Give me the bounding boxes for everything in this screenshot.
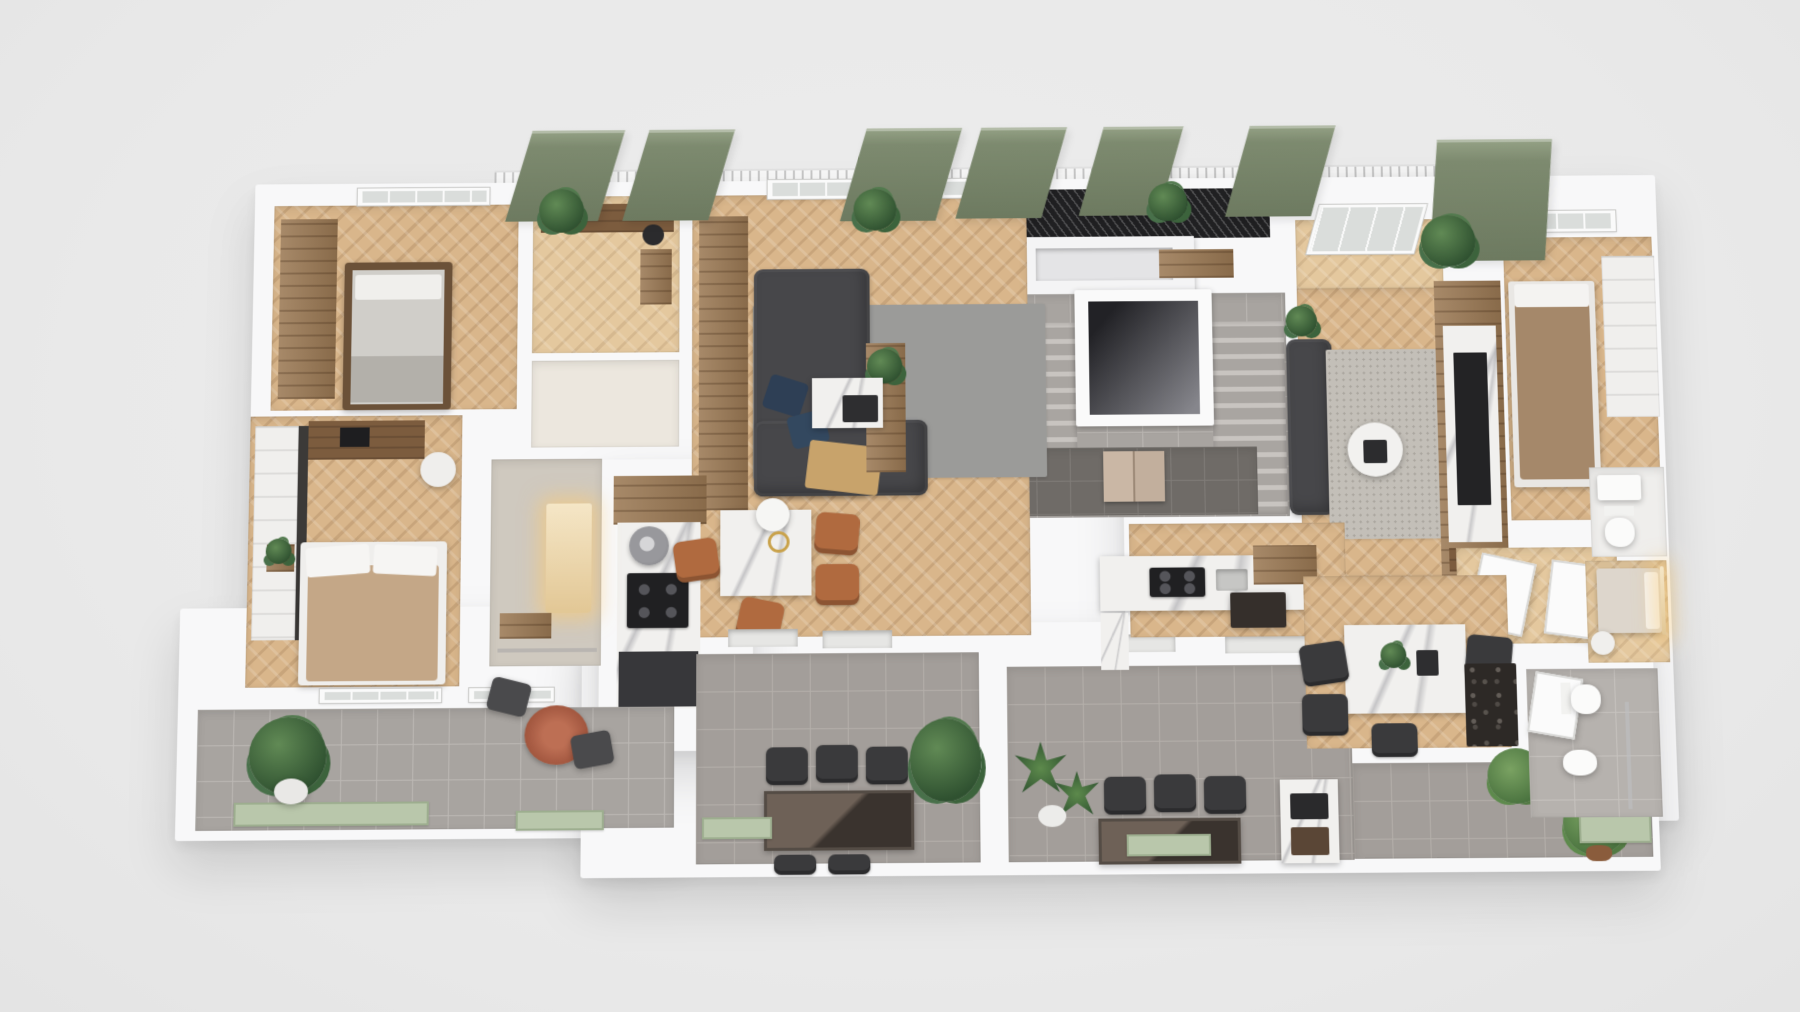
balcony-right-fern-pot bbox=[1586, 845, 1613, 861]
kitchen2-sink bbox=[1216, 569, 1248, 591]
terrace-planter-1 bbox=[233, 801, 429, 826]
kitchen-hood bbox=[629, 526, 669, 565]
master-duvet bbox=[306, 565, 439, 682]
living-wall-cabinet bbox=[699, 216, 748, 510]
kitchen2-fridge bbox=[1230, 592, 1286, 628]
study-shelf bbox=[640, 249, 672, 305]
living2-table-tray bbox=[1363, 440, 1387, 463]
small-bedroom-stool bbox=[1591, 631, 1616, 655]
kitchen2-cooktop bbox=[1149, 567, 1205, 597]
balcony-left-plant bbox=[910, 718, 983, 802]
floor-plan-canvas bbox=[166, 123, 1687, 891]
study-desk-lamp bbox=[642, 224, 664, 245]
balcony-left-chair-3 bbox=[866, 746, 908, 784]
roof-plant-3 bbox=[1148, 183, 1188, 221]
dining2-dark-rug bbox=[1464, 663, 1518, 746]
terrace-planter-2 bbox=[516, 810, 604, 831]
small-bedroom-pillow bbox=[1644, 572, 1660, 629]
hallway-floor bbox=[531, 360, 679, 448]
pendant-lamp bbox=[756, 498, 790, 531]
balcony-right-window-slot-2 bbox=[1225, 635, 1310, 653]
coffee-table-tray bbox=[843, 395, 879, 422]
kitchen-upper-cabinet bbox=[614, 475, 707, 524]
entry-sideboard bbox=[1159, 249, 1234, 278]
floor-plan-render bbox=[0, 0, 1800, 1012]
balcony-right-chair-2 bbox=[1154, 774, 1197, 812]
bedroom1-wardrobe bbox=[1601, 256, 1660, 417]
bathroom2-bidet bbox=[1563, 750, 1598, 776]
balcony-left-window-slot-2 bbox=[823, 630, 893, 648]
bathroom1-toilet-tank bbox=[1604, 506, 1634, 516]
dining2-table-plant bbox=[1380, 642, 1407, 668]
closet-rail bbox=[497, 648, 596, 653]
dining-chair-1 bbox=[672, 537, 721, 584]
balcony-right-plant-pot bbox=[1038, 805, 1066, 827]
elevator-doors bbox=[1103, 451, 1165, 502]
bathroom-vanity bbox=[500, 613, 552, 639]
roof-plant-2 bbox=[853, 189, 896, 231]
dining-chair-2 bbox=[814, 512, 861, 556]
balcony-left-window-slot-1 bbox=[728, 629, 798, 647]
desk-monitor bbox=[340, 427, 370, 447]
bathroom-lit-marble-wall bbox=[545, 503, 591, 613]
balcony-left-table bbox=[764, 790, 914, 851]
balcony-left-chair-2 bbox=[816, 745, 858, 783]
terrace-stool-2 bbox=[570, 730, 615, 770]
bedroom1-duvet bbox=[1514, 294, 1595, 479]
balcony-right-planter-1 bbox=[1127, 834, 1212, 857]
dining2-chair-2 bbox=[1302, 694, 1349, 736]
dining2-table bbox=[1344, 624, 1468, 713]
dining-chair-3 bbox=[815, 564, 859, 605]
balcony-right-chair-3 bbox=[1204, 776, 1247, 814]
bedroom2-wardrobe bbox=[278, 219, 338, 399]
master-pillow-1 bbox=[305, 544, 370, 578]
dining2-chair-1 bbox=[1298, 640, 1350, 688]
dining2-table-box bbox=[1416, 650, 1439, 676]
master-pillow-2 bbox=[373, 544, 438, 576]
tv-screen bbox=[1453, 352, 1491, 505]
kitchen-dark-cabinet bbox=[618, 651, 698, 707]
bedroom2-window bbox=[358, 188, 490, 206]
stair-shaft-void bbox=[1088, 301, 1200, 415]
bathroom2-toilet bbox=[1570, 684, 1601, 714]
balcony-left-chair-4 bbox=[774, 855, 816, 875]
bedroom1-pillow bbox=[1514, 284, 1589, 307]
bathroom1-sink bbox=[1597, 475, 1641, 501]
living2-sofa-plant bbox=[1285, 306, 1317, 337]
bathroom1-toilet bbox=[1604, 518, 1635, 547]
bathroom2-toilet-tank bbox=[1560, 683, 1571, 715]
balcony-left-planter bbox=[702, 817, 772, 839]
balcony-left-chair-5 bbox=[828, 854, 870, 874]
living2-window bbox=[1306, 204, 1427, 254]
kitchen2-counter-leg bbox=[1100, 613, 1129, 670]
balcony-left-chair-1 bbox=[766, 747, 808, 785]
bedroom2-blanket bbox=[350, 356, 443, 403]
master-wardrobe bbox=[251, 426, 299, 641]
bedroom2-pillow bbox=[355, 274, 442, 299]
grill-top-inset bbox=[1290, 793, 1329, 819]
roof-plant-4 bbox=[1420, 215, 1476, 267]
master-terrace-window-1 bbox=[320, 688, 442, 703]
dining2-chair-5 bbox=[1371, 723, 1418, 757]
stairwell-skylight-recess bbox=[1036, 248, 1173, 281]
pendant-gold-ring bbox=[768, 531, 790, 553]
grill-lower-inset bbox=[1291, 827, 1330, 855]
balcony-right-chair-1 bbox=[1104, 777, 1147, 815]
